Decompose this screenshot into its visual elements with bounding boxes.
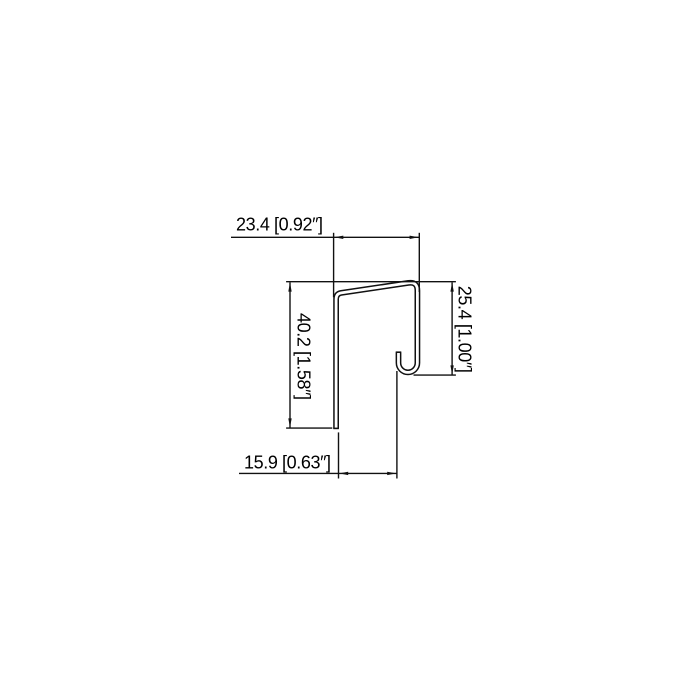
svg-text:25.4 [1.00″]: 25.4 [1.00″] bbox=[455, 286, 475, 373]
svg-text:40.2 [1.58″]: 40.2 [1.58″] bbox=[294, 313, 314, 400]
svg-text:15.9 [0.63″]: 15.9 [0.63″] bbox=[244, 452, 331, 472]
svg-text:23.4 [0.92″]: 23.4 [0.92″] bbox=[236, 215, 323, 235]
